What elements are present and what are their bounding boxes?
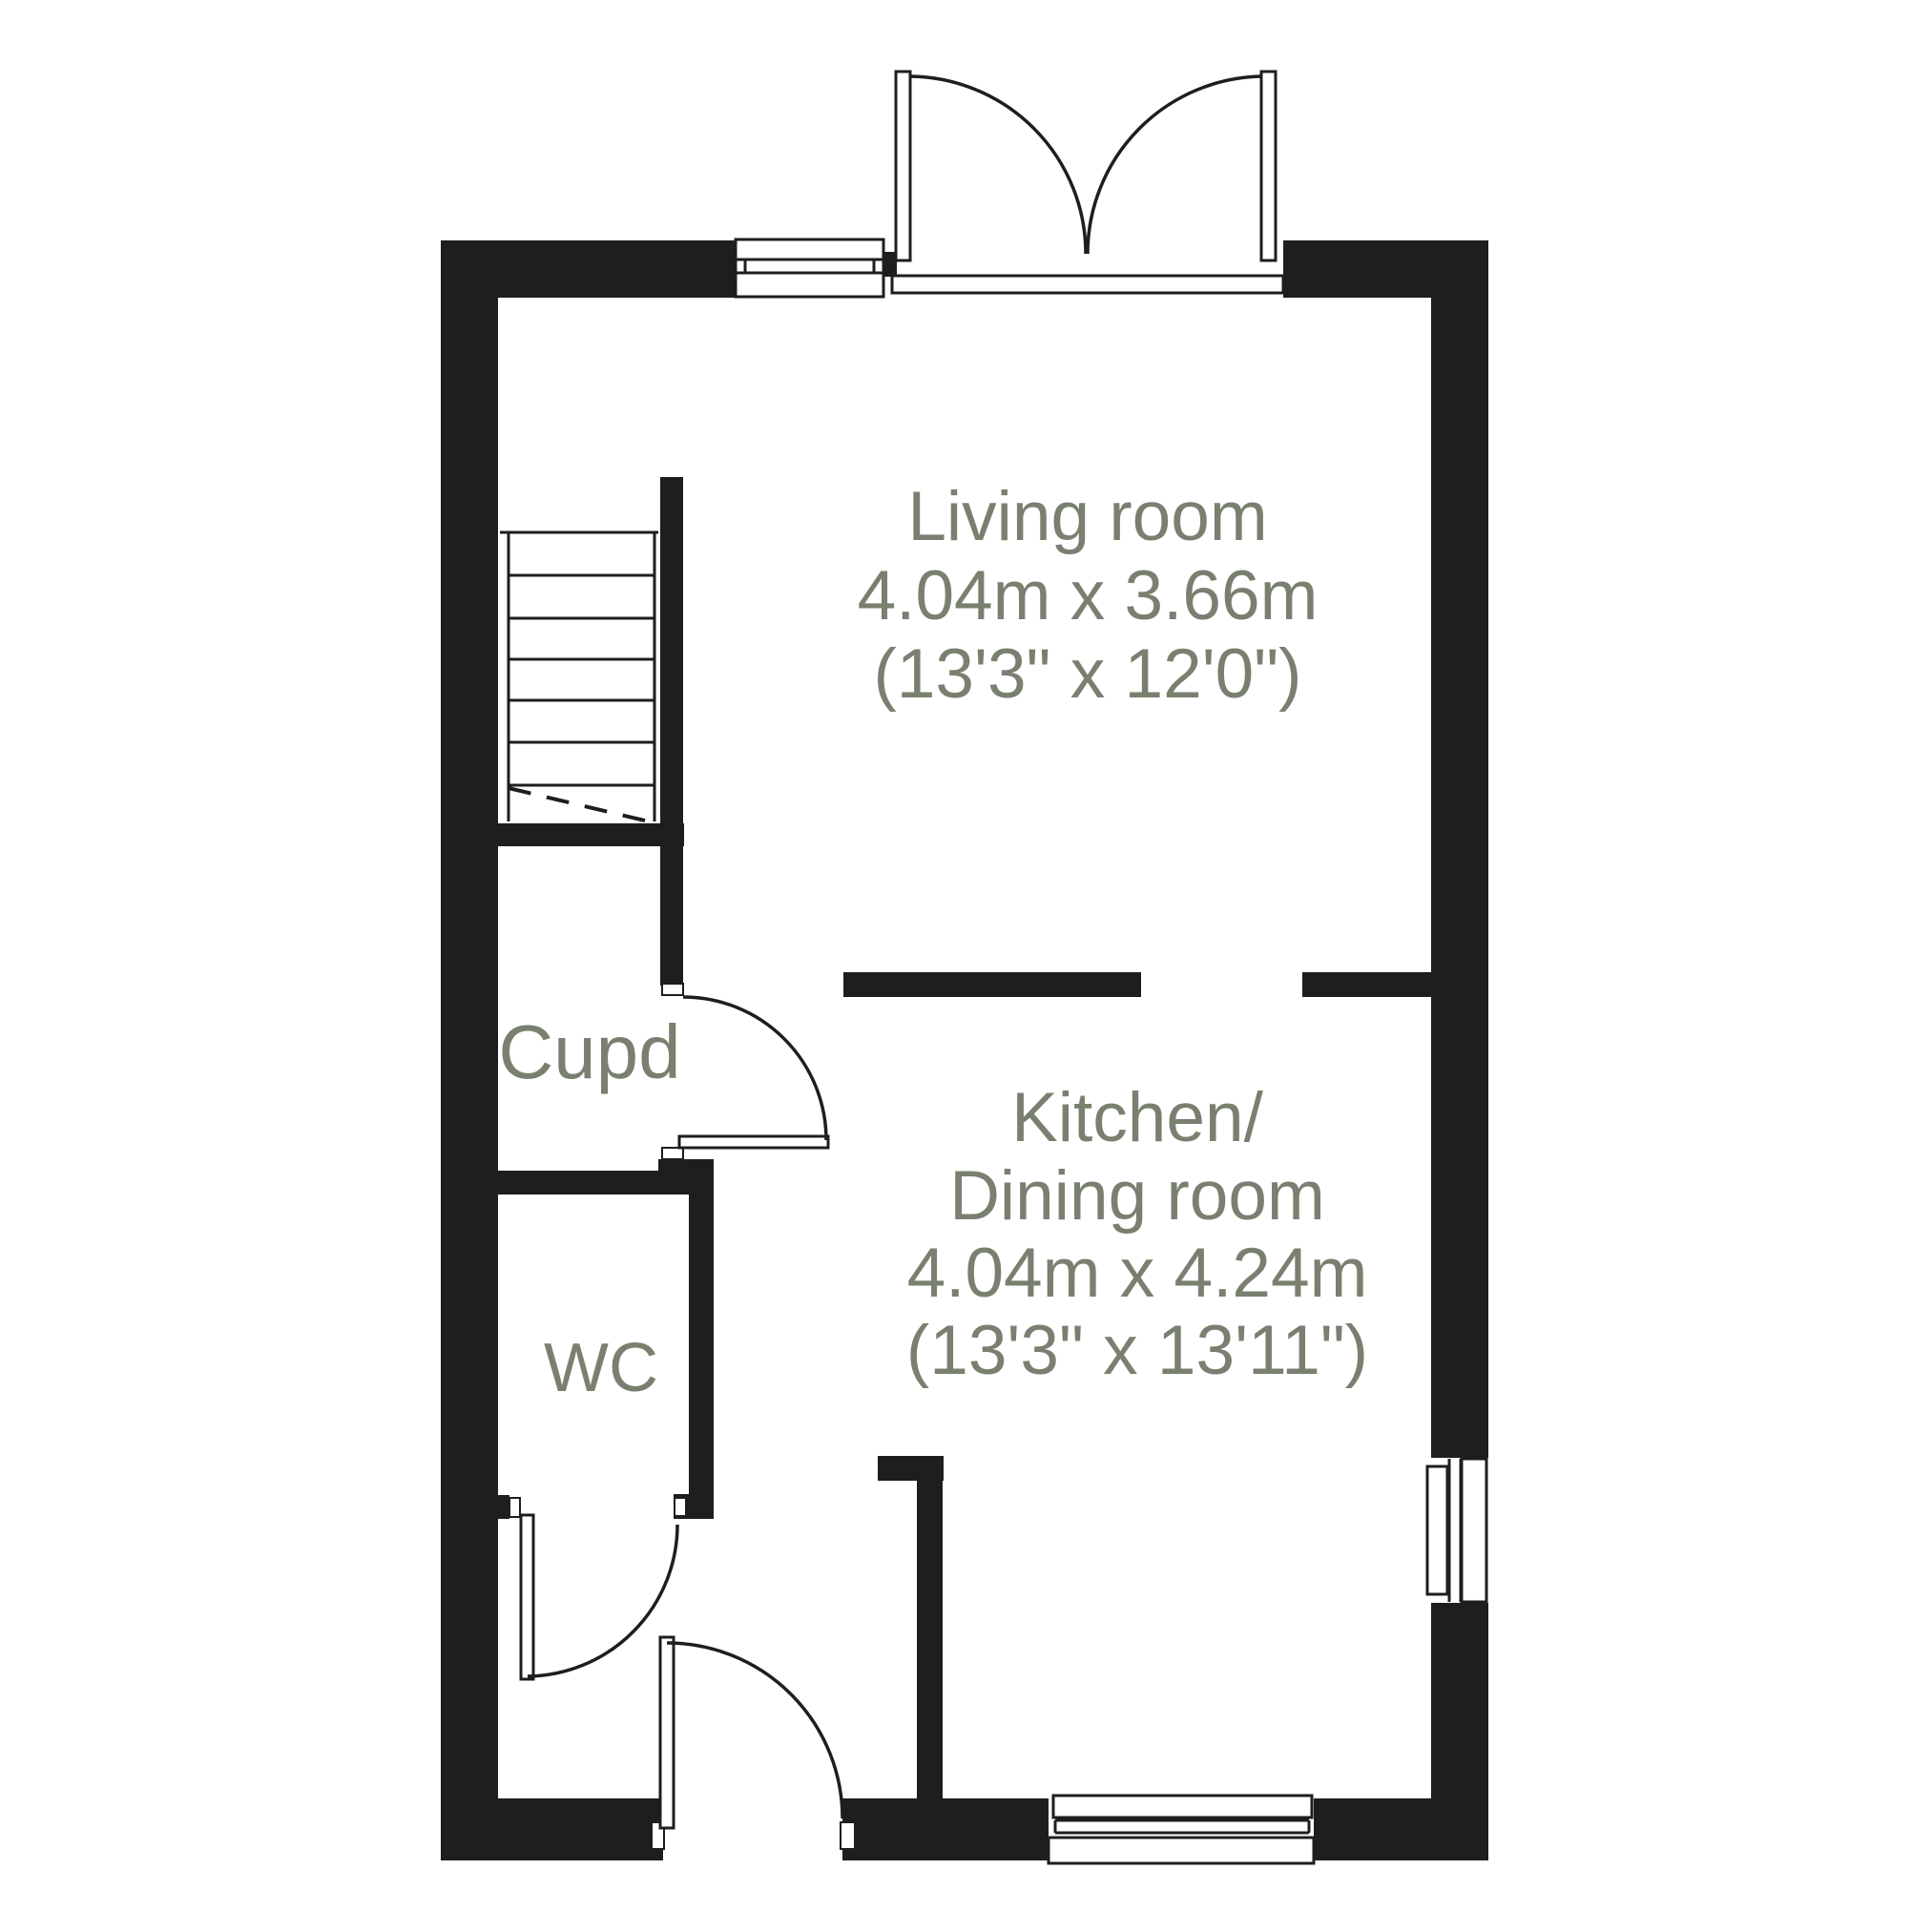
room-dims-kitchen-metric: 4.04m x 4.24m (907, 1235, 1368, 1312)
door-front-leaf (660, 1637, 674, 1828)
french-doors (892, 72, 1283, 293)
wall-exterior-bottom-right (1312, 1798, 1488, 1860)
door-cupboard-jamb-top (662, 984, 683, 995)
room-dims-living-imperial: (13'3" x 12'0") (874, 635, 1302, 713)
door-wc-swing-arc (528, 1525, 677, 1676)
door-front-swing-arc (667, 1643, 842, 1818)
door-front-jamb-right (841, 1822, 855, 1849)
window-right-inner-sill (1427, 1466, 1447, 1594)
door-cupboard-leaf (679, 1136, 828, 1148)
wall-divider-living-kitchen-right (1302, 972, 1431, 997)
french-door-swing-arc-left (910, 76, 1086, 254)
floor-plan-page: Living room 4.04m x 3.66m (13'3" x 12'0"… (0, 0, 1932, 1932)
door-cupboard (662, 984, 828, 1159)
door-wc-leaf (521, 1515, 533, 1679)
window-bottom-top-frame (1053, 1796, 1312, 1818)
wall-hall-kitchen-vertical (917, 1481, 943, 1805)
french-door-leaf-left (896, 72, 910, 260)
door-cupboard-swing-arc (683, 997, 826, 1140)
room-label-living: Living room (907, 478, 1267, 555)
wall-wc-top (498, 1171, 709, 1195)
wall-wc-right (689, 1195, 714, 1496)
wall-stair-bottom (498, 823, 684, 846)
room-label-cupboard: Cupd (498, 1009, 680, 1094)
wall-exterior-top-left-segment (498, 240, 735, 298)
room-dims-kitchen-imperial: (13'3" x 13'11") (906, 1312, 1368, 1389)
door-wc-jamb-right (675, 1498, 686, 1516)
room-label-kitchen-line2: Dining room (949, 1157, 1325, 1235)
window-right (1427, 1458, 1488, 1603)
door-wc-jamb-left (509, 1498, 520, 1517)
stair-understair-dashed-line (509, 788, 653, 822)
french-door-leaf-right (1261, 72, 1276, 260)
wall-exterior-bottom-middle (842, 1798, 1052, 1860)
floor-plan-svg: Living room 4.04m x 3.66m (13'3" x 12'0"… (0, 0, 1932, 1932)
window-top (735, 239, 884, 298)
staircase (500, 532, 658, 822)
door-cupboard-jamb-bottom (662, 1148, 683, 1159)
window-bottom-lower-frame (1049, 1838, 1314, 1863)
door-front (652, 1637, 855, 1849)
room-label-wc: WC (544, 1330, 658, 1406)
room-label-kitchen-line1: Kitchen/ (1011, 1079, 1263, 1156)
wall-exterior-bottom-left (441, 1798, 663, 1860)
window-right-outer-frame (1462, 1459, 1486, 1602)
room-dims-living-metric: 4.04m x 3.66m (858, 557, 1319, 634)
wall-wc-bottom-stub (498, 1495, 509, 1519)
wall-hall-kitchen-stub (878, 1456, 944, 1481)
wall-exterior-right-upper (1431, 240, 1488, 1458)
wall-divider-living-kitchen-left (843, 972, 1141, 997)
french-door-swing-arc-right (1088, 76, 1261, 254)
window-bottom (1049, 1794, 1314, 1863)
wall-stair-right (660, 477, 683, 986)
french-door-threshold (892, 276, 1283, 293)
window-top-frame (736, 239, 883, 297)
wall-exterior-left (441, 240, 498, 1860)
